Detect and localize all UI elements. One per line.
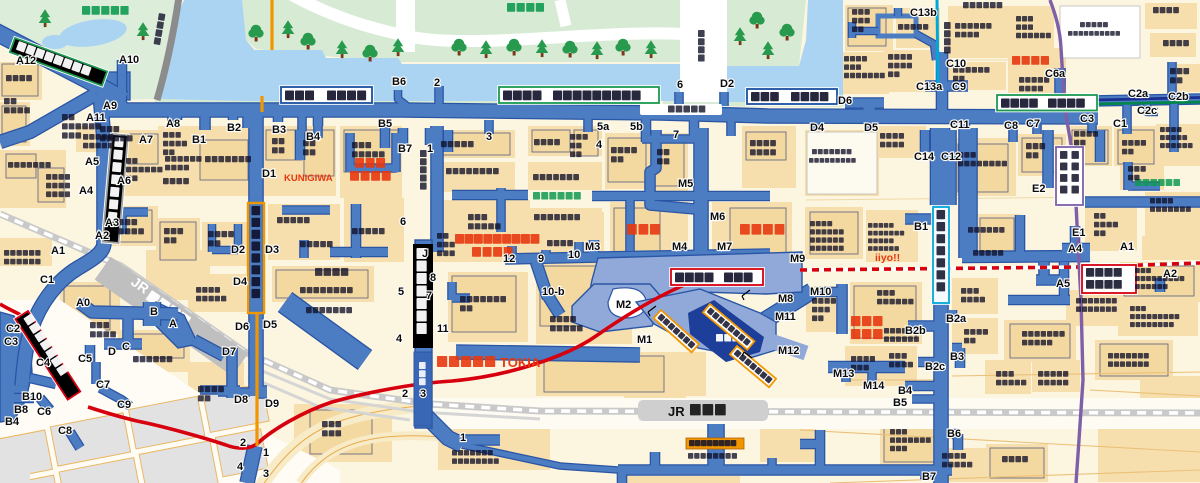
svg-text:B2a: B2a bbox=[946, 313, 967, 325]
svg-text:A4: A4 bbox=[1068, 243, 1083, 255]
svg-text:C2: C2 bbox=[6, 323, 20, 335]
svg-text:M14: M14 bbox=[863, 380, 885, 392]
svg-text:D4: D4 bbox=[233, 276, 248, 288]
svg-text:D5: D5 bbox=[263, 319, 277, 331]
svg-text:7: 7 bbox=[673, 129, 679, 141]
svg-text:M11: M11 bbox=[775, 311, 796, 323]
svg-text:B6: B6 bbox=[947, 428, 961, 440]
svg-text:8: 8 bbox=[430, 272, 436, 284]
svg-text:7: 7 bbox=[426, 290, 432, 302]
svg-text:C1: C1 bbox=[40, 274, 54, 286]
svg-text:D6: D6 bbox=[838, 95, 852, 107]
svg-text:D2: D2 bbox=[720, 78, 734, 90]
svg-text:C9: C9 bbox=[117, 399, 131, 411]
svg-text:D1: D1 bbox=[262, 168, 276, 180]
svg-text:D6: D6 bbox=[235, 321, 249, 333]
svg-text:B7: B7 bbox=[922, 471, 936, 483]
svg-text:C3: C3 bbox=[4, 336, 18, 348]
svg-text:M10: M10 bbox=[810, 286, 831, 298]
svg-text:A9: A9 bbox=[103, 100, 117, 112]
svg-text:9: 9 bbox=[538, 253, 544, 265]
svg-text:iiyo!!: iiyo!! bbox=[875, 252, 900, 264]
svg-text:D3: D3 bbox=[265, 244, 279, 256]
svg-text:M9: M9 bbox=[790, 253, 805, 265]
svg-text:C7: C7 bbox=[96, 379, 110, 391]
svg-text:A12: A12 bbox=[16, 55, 36, 67]
svg-text:A5: A5 bbox=[1056, 278, 1070, 290]
svg-text:C9: C9 bbox=[952, 81, 966, 93]
svg-text:C5: C5 bbox=[78, 353, 92, 365]
svg-text:4: 4 bbox=[237, 461, 244, 473]
svg-text:D9: D9 bbox=[265, 398, 279, 410]
svg-text:M1: M1 bbox=[637, 334, 652, 346]
svg-text:A4: A4 bbox=[79, 185, 94, 197]
svg-text:A: A bbox=[169, 318, 177, 330]
svg-text:M13: M13 bbox=[833, 368, 854, 380]
svg-text:B4: B4 bbox=[306, 131, 321, 143]
svg-text:5: 5 bbox=[398, 286, 404, 298]
svg-text:D2: D2 bbox=[231, 244, 245, 256]
svg-text:3: 3 bbox=[263, 468, 269, 480]
svg-text:10: 10 bbox=[568, 249, 580, 261]
svg-text:5b: 5b bbox=[630, 121, 643, 133]
svg-text:A10: A10 bbox=[119, 54, 139, 66]
svg-text:C12: C12 bbox=[941, 151, 961, 163]
svg-text:B6: B6 bbox=[392, 76, 406, 88]
svg-text:A2: A2 bbox=[1163, 268, 1177, 280]
svg-text:C14: C14 bbox=[914, 151, 935, 163]
svg-text:C3: C3 bbox=[1080, 113, 1094, 125]
svg-text:C1: C1 bbox=[1113, 118, 1127, 130]
svg-text:2: 2 bbox=[402, 388, 408, 400]
svg-text:TOKIA: TOKIA bbox=[500, 355, 541, 370]
svg-text:A0: A0 bbox=[76, 297, 90, 309]
svg-text:D4: D4 bbox=[810, 122, 825, 134]
svg-text:J: J bbox=[422, 248, 428, 260]
svg-text:A1: A1 bbox=[51, 245, 65, 257]
svg-text:C11: C11 bbox=[950, 119, 970, 131]
svg-text:C13b: C13b bbox=[910, 7, 937, 19]
svg-text:4: 4 bbox=[396, 333, 403, 345]
svg-text:JR: JR bbox=[668, 404, 685, 419]
svg-text:C6: C6 bbox=[37, 406, 51, 418]
svg-text:B5: B5 bbox=[378, 118, 392, 130]
svg-text:M4: M4 bbox=[672, 241, 688, 253]
svg-text:M2: M2 bbox=[616, 299, 631, 311]
svg-text:A1: A1 bbox=[1120, 241, 1134, 253]
svg-text:M5: M5 bbox=[678, 178, 693, 190]
svg-text:B7: B7 bbox=[398, 143, 412, 155]
svg-text:B4: B4 bbox=[898, 385, 913, 397]
svg-text:B2: B2 bbox=[227, 122, 241, 134]
svg-text:A7: A7 bbox=[139, 134, 153, 146]
svg-text:C: C bbox=[122, 341, 130, 353]
svg-text:B8: B8 bbox=[14, 404, 28, 416]
svg-text:2: 2 bbox=[434, 77, 440, 89]
svg-text:M3: M3 bbox=[585, 241, 600, 253]
svg-text:D8: D8 bbox=[234, 394, 248, 406]
svg-text:B1: B1 bbox=[914, 221, 928, 233]
svg-text:C6a: C6a bbox=[1045, 68, 1066, 80]
svg-text:4: 4 bbox=[596, 139, 603, 151]
svg-text:M8: M8 bbox=[778, 293, 793, 305]
svg-text:C2c: C2c bbox=[1137, 105, 1157, 117]
svg-text:1: 1 bbox=[427, 143, 433, 155]
svg-text:2: 2 bbox=[240, 437, 246, 449]
svg-text:C2b: C2b bbox=[1168, 91, 1189, 103]
svg-text:A2: A2 bbox=[95, 230, 109, 242]
svg-text:B5: B5 bbox=[893, 397, 907, 409]
svg-text:10-b: 10-b bbox=[542, 286, 565, 298]
svg-text:A3: A3 bbox=[105, 217, 119, 229]
svg-text:6: 6 bbox=[400, 216, 406, 228]
svg-text:C10: C10 bbox=[946, 58, 966, 70]
svg-text:1: 1 bbox=[460, 432, 466, 444]
svg-text:C8: C8 bbox=[58, 425, 72, 437]
svg-text:B3: B3 bbox=[950, 351, 964, 363]
svg-text:C8: C8 bbox=[1004, 120, 1018, 132]
svg-text:C13a: C13a bbox=[916, 81, 943, 93]
svg-text:11: 11 bbox=[437, 323, 449, 335]
svg-text:A11: A11 bbox=[86, 112, 106, 124]
svg-text:B2b: B2b bbox=[905, 325, 926, 337]
svg-text:A6: A6 bbox=[117, 175, 131, 187]
svg-text:M7: M7 bbox=[717, 241, 732, 253]
svg-text:12: 12 bbox=[503, 253, 515, 265]
svg-text:B4: B4 bbox=[5, 416, 20, 428]
svg-text:D7: D7 bbox=[222, 346, 236, 358]
svg-text:3: 3 bbox=[420, 388, 426, 400]
svg-text:D5: D5 bbox=[864, 122, 878, 134]
svg-text:1: 1 bbox=[263, 447, 269, 459]
svg-text:B3: B3 bbox=[272, 124, 286, 136]
svg-text:6: 6 bbox=[677, 79, 683, 91]
svg-text:M12: M12 bbox=[778, 345, 799, 357]
svg-text:E2: E2 bbox=[1032, 183, 1045, 195]
svg-text:B1: B1 bbox=[192, 134, 206, 146]
svg-text:A8: A8 bbox=[166, 118, 180, 130]
svg-text:5a: 5a bbox=[597, 121, 610, 133]
svg-text:B2c: B2c bbox=[925, 361, 945, 373]
svg-text:C7: C7 bbox=[1026, 118, 1040, 130]
svg-text:D: D bbox=[108, 346, 116, 358]
svg-text:KUNIGIWA: KUNIGIWA bbox=[284, 173, 333, 184]
svg-text:C2a: C2a bbox=[1128, 88, 1149, 100]
svg-text:B: B bbox=[150, 306, 158, 318]
svg-text:C4: C4 bbox=[36, 357, 51, 369]
svg-text:A5: A5 bbox=[85, 156, 99, 168]
svg-text:M6: M6 bbox=[710, 211, 725, 223]
svg-text:E1: E1 bbox=[1072, 227, 1085, 239]
svg-text:B10: B10 bbox=[22, 391, 42, 403]
svg-text:3: 3 bbox=[486, 131, 492, 143]
